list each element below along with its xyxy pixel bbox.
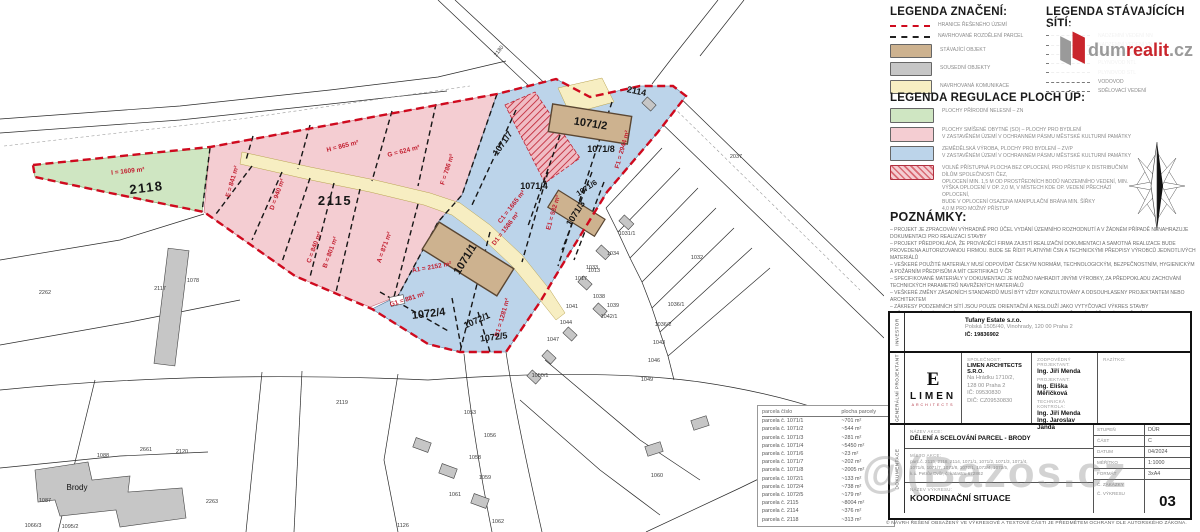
parcel-number-cell: parcela č. 2115 (762, 499, 841, 507)
legend-item: HRANICE ŘEŠENÉHO ÚZEMÍ (890, 22, 1042, 29)
parcel-number-cell: parcela č. 1071/4 (762, 442, 841, 450)
neighbor-parcel-label: 1060 (651, 473, 663, 479)
parcel-number-cell: parcela č. 1072/1 (762, 475, 841, 483)
parcel-area-cell: ~376 m² (841, 507, 890, 515)
notes-title: POZNÁMKY: (890, 210, 1196, 224)
parcel-number-cell: parcela č. 1072/5 (762, 491, 841, 499)
neighbor-parcel-label: 1043 (653, 340, 665, 346)
neighbor-parcel-label: 2661 (140, 447, 152, 453)
neighbor-parcel-label: 2119 (336, 400, 348, 406)
plan-sheet: I = 1609 m²H = 865 m²G = 624 m²F = 786 m… (0, 0, 1200, 532)
neighbor-parcel-label: 1053 (464, 410, 476, 416)
nazev-akce-value: DĚLENÍ A SCELOVÁNÍ PARCEL - BRODY (910, 435, 1088, 442)
meta-value (1145, 480, 1190, 489)
legend-item-label: STÁVAJÍCÍ OBJEKT (940, 47, 986, 54)
parcel-table-header: parcela číslo plocha parcely (762, 408, 890, 417)
neighbor-parcel-label: 1059 (479, 475, 491, 481)
neighbor-parcel-label: 1047 (547, 337, 559, 343)
meta-value: 3xA4 (1145, 469, 1190, 479)
parcel-area-cell: ~701 m² (841, 417, 890, 425)
neighbor-parcel-label: 1042/1 (601, 314, 618, 320)
utility-legend-item: VODOVOD (1046, 79, 1198, 86)
company-name: LIMEN ARCHITECTS S.R.O. (967, 363, 1026, 375)
neighbor-parcel-label: 1061 (449, 492, 461, 498)
table-row: parcela č. 2115~8004 m² (762, 499, 890, 507)
investor-address: Polská 1505/40, Vinohrady, 120 00 Praha … (965, 324, 1185, 332)
regulation-legend-label: PLOCHY PŘÍRODNÍ NELESNÍ – ZN (942, 108, 1023, 115)
tech-label: TECHNICKÁ KONTROLA: (1037, 399, 1092, 409)
neighbor-parcel-label: 1038 (593, 294, 605, 300)
parcel-number-cell: parcela č. 1071/2 (762, 425, 841, 433)
line-sample-icon (890, 36, 930, 38)
regulation-legend-item: VOLNĚ PŘÍSTUPNÁ PLOCHA BEZ OPLOCENÍ, PRO… (890, 165, 1136, 212)
meta-value: DÚR (1145, 425, 1190, 435)
regulation-legend-label: VOLNĚ PŘÍSTUPNÁ PLOCHA BEZ OPLOCENÍ, PRO… (942, 165, 1136, 212)
investor-name: Tufany Estate s.r.o. (965, 317, 1185, 324)
neighbor-parcel-label: 1087 (39, 498, 51, 504)
parcel-number-label: 1071/8 (587, 144, 615, 154)
regulation-legend-item: PLOCHY PŘÍRODNÍ NELESNÍ – ZN (890, 108, 1136, 123)
company-address2: 128 00 Praha 2 (967, 383, 1026, 391)
zodp-name: Ing. Jiří Menda (1037, 368, 1092, 375)
projektant-side-label-cell: GENERÁLNÍ PROJEKTANT (890, 353, 905, 423)
col-parcel-number: parcela číslo (762, 408, 841, 416)
legend-item-label: NAVRHOVANÁ KOMUNIKACE (940, 83, 1009, 90)
note-line: PROJEKT PŘEDPOKLÁDÁ, ŽE PROVÁDĚCÍ FIRMA … (890, 241, 1196, 262)
drawing-number-value: 03 (1145, 489, 1190, 513)
col-parcel-area: plocha parcely (841, 408, 890, 416)
regulation-legend-item: ZEMĚDĚLSKÁ VÝROBA, PLOCHY PRO BYDLENÍ – … (890, 146, 1136, 161)
neighbor-parcel-label: 2180 (493, 45, 505, 58)
parcel-area-cell: ~313 m² (841, 516, 890, 524)
parcel-number-cell: parcela č. 2114 (762, 507, 841, 515)
hatched-swatch-icon (890, 165, 934, 180)
neighbor-parcel-label: 2120 (176, 449, 188, 455)
titleblock-projektant-row: GENERÁLNÍ PROJEKTANT E LIMEN ARCHITECTS … (890, 353, 1190, 425)
legend-item: STÁVAJÍCÍ OBJEKT (890, 44, 1042, 58)
meta-label: STUPEŇ (1094, 425, 1145, 435)
nazev-akce-label: NÁZEV AKCE: (910, 429, 1088, 434)
meta-value: 04/2024 (1145, 447, 1190, 457)
swatch-icon (890, 146, 934, 161)
dash-line-icon (1046, 82, 1090, 83)
table-row: parcela č. 2118~313 m² (762, 516, 890, 524)
table-row: parcela č. 1071/2~544 m² (762, 425, 890, 433)
legend-regulace-title: LEGENDA REGULACE PLOCH ÚP: (890, 92, 1136, 104)
parcel-number-cell: parcela č. 1071/6 (762, 450, 841, 458)
parcel-number-cell: parcela č. 1071/3 (762, 434, 841, 442)
green-area-2118 (33, 148, 210, 212)
swatch-icon (890, 44, 932, 58)
proj-name: Ing. Eliška Měřičková (1037, 383, 1092, 397)
parcel-area-cell: ~544 m² (841, 425, 890, 433)
site-plan-map: I = 1609 m²H = 865 m²G = 624 m²F = 786 m… (0, 0, 884, 532)
utility-legend-label: VODOVOD (1098, 79, 1124, 86)
neighbor-parcel-label: 1034 (607, 251, 619, 257)
line-sample-icon (890, 25, 930, 27)
parcel-area-cell: ~281 m² (841, 434, 890, 442)
parcel-number-label: 1071/4 (520, 181, 548, 191)
company-label: SPOLEČNOST: (967, 357, 1026, 362)
limen-logo-sub: ARCHITECTS (910, 403, 956, 407)
parcel-number-cell: parcela č. 1071/8 (762, 466, 841, 474)
legend-znaceni-title: LEGENDA ZNAČENÍ: (890, 6, 1042, 18)
limen-logo-text: LIMEN (910, 391, 956, 402)
swatch-icon (890, 108, 934, 123)
note-line: ZÁKRESY PODZEMNÍCH SÍTÍ JSOU POUZE ORIEN… (890, 304, 1196, 311)
legend-item: NAVRHOVANÉ ROZDĚLENÍ PARCEL (890, 33, 1042, 40)
dumrealit-text-cz: .cz (1169, 40, 1193, 61)
titleblock-investor-row: INVESTOR Tufany Estate s.r.o. Polská 150… (890, 313, 1190, 353)
note-line: VEŠKERÉ POUŽITÉ MATERIÁLY MUSÍ ODPOVÍDAT… (890, 262, 1196, 276)
bazos-watermark: @(Bazos.cz (862, 448, 1128, 498)
swatch-icon (890, 62, 932, 76)
note-line: PROJEKT JE ZPRACOVÁN VÝHRADNĚ PRO ÚČEL V… (890, 227, 1196, 241)
proj-label: PROJEKTANT: (1037, 377, 1092, 382)
neighbor-parcel-label: 1050/1 (532, 373, 549, 379)
table-row: parcela č. 1071/3~281 m² (762, 434, 890, 442)
dumrealit-text-realit: realit (1126, 40, 1169, 61)
tech-name-1: Ing. Jiří Menda (1037, 410, 1092, 417)
neighbor-parcel-label: 2037 (730, 154, 742, 160)
people-cell: ZODPOVĚDNÝ PROJEKTANT: Ing. Jiří Menda P… (1032, 353, 1098, 423)
investor-side-label: INVESTOR (895, 318, 900, 345)
parcel-number-cell: parcela č. 1071/7 (762, 458, 841, 466)
dumrealit-text-dum: dum (1088, 40, 1126, 61)
nazev-akce-cell: NÁZEV AKCE: DĚLENÍ A SCELOVÁNÍ PARCEL - … (905, 425, 1093, 449)
parcel-number-cell: parcela č. 1071/1 (762, 417, 841, 425)
neighbor-parcel-label: 2117 (154, 286, 166, 292)
neighbor-parcel-label: 1041 (566, 304, 578, 310)
company-dic: DIČ: CZ09530830 (967, 398, 1026, 406)
neighbor-parcel-label: 1095/2 (62, 524, 79, 530)
legend-item-label: SOUSEDNÍ OBJEKTY (940, 65, 990, 72)
neighbor-parcel-label: 1036/1 (668, 302, 685, 308)
legend-znaceni: LEGENDA ZNAČENÍ: HRANICE ŘEŠENÉHO ÚZEMÍN… (890, 6, 1042, 94)
note-line: SPECIFIKOVANÉ MATERIÁLY V DOKUMENTACI JE… (890, 276, 1196, 290)
table-row: parcela č. 1071/1~701 m² (762, 417, 890, 425)
neighbor-parcel-label: 1062 (492, 519, 504, 525)
table-row: parcela č. 2114~376 m² (762, 507, 890, 515)
parcel-number-cell: parcela č. 1072/4 (762, 483, 841, 491)
limen-logo-cell: E LIMEN ARCHITECTS (905, 353, 962, 423)
meta-row: ČÁSTC (1094, 436, 1190, 447)
meta-row: STUPEŇDÚR (1094, 425, 1190, 436)
limen-logo: E LIMEN ARCHITECTS (910, 370, 956, 407)
neighbor-parcel-label: 1013 (588, 268, 600, 274)
parcel-number-label: 2115 (318, 193, 352, 208)
copyright-line: © NÁVRH ŘEŠENÍ OBSAŽENÝ VE VÝKRESOVÉ A T… (886, 521, 1196, 526)
company-ic: IČ: 09530830 (967, 390, 1026, 398)
legend-item: SOUSEDNÍ OBJEKTY (890, 62, 1042, 76)
neighbor-parcel-label: 1046 (648, 358, 660, 364)
meta-label: ČÁST (1094, 436, 1145, 446)
neighbor-parcel-label: 1078 (187, 278, 199, 284)
legend-item-label: NAVRHOVANÉ ROZDĚLENÍ PARCEL (938, 33, 1023, 40)
legend-regulace: LEGENDA REGULACE PLOCH ÚP: PLOCHY PŘÍROD… (890, 92, 1136, 212)
limen-logo-mark: E (910, 370, 956, 389)
regulation-legend-label: PLOCHY SMÍŠENÉ OBYTNÉ (SO) – PLOCHY PRO … (942, 127, 1131, 141)
neighbor-parcel-label: 1036/2 (655, 322, 672, 328)
neighbor-parcel-label: 2263 (206, 499, 218, 505)
stamp-cell: RAZÍTKO: (1098, 353, 1190, 423)
zodp-label: ZODPOVĚDNÝ PROJEKTANT: (1037, 357, 1092, 367)
investor-side-label-cell: INVESTOR (890, 313, 905, 351)
parcel-area-cell: ~8004 m² (841, 499, 890, 507)
regulation-legend-item: PLOCHY SMÍŠENÉ OBYTNÉ (SO) – PLOCHY PRO … (890, 127, 1136, 142)
investor-spacer (905, 313, 960, 351)
meta-value: 1:1000 (1145, 458, 1190, 468)
neighbor-parcel-label: 1066/3 (25, 523, 42, 529)
neighbor-parcel-label: 1056 (484, 433, 496, 439)
neighbor-parcel-label: 1044 (560, 320, 572, 326)
projektant-side-label: GENERÁLNÍ PROJEKTANT (895, 354, 900, 422)
parcel-number-cell: parcela č. 2118 (762, 516, 841, 524)
neighbor-parcel-label: 2262 (39, 290, 51, 296)
meta-value: C (1145, 436, 1190, 446)
neighbor-parcel-label: 1032 (691, 255, 703, 261)
note-line: VEŠKERÉ ZMĚNY ZÁSADNÍCH STANDARDŮ MUSÍ B… (890, 290, 1196, 304)
legend-item-label: HRANICE ŘEŠENÉHO ÚZEMÍ (938, 22, 1007, 29)
neighbor-parcel-label: 1049 (641, 377, 653, 383)
neighbor-parcel-label: 1039 (607, 303, 619, 309)
investor-info: Tufany Estate s.r.o. Polská 1505/40, Vin… (960, 313, 1190, 351)
company-address1: Na Hrádku 1710/2, (967, 375, 1026, 383)
neighbor-parcel-label: 1017 (575, 276, 587, 282)
dumrealit-house-icon (1054, 28, 1088, 72)
neighbor-parcel-label: 1126 (397, 523, 409, 529)
company-cell: SPOLEČNOST: LIMEN ARCHITECTS S.R.O. Na H… (962, 353, 1032, 423)
stamp-label: RAZÍTKO: (1103, 357, 1185, 362)
neighbor-parcel-label: 1088 (97, 453, 109, 459)
swatch-icon (890, 127, 934, 142)
neighbor-parcel-label: Brody (67, 483, 88, 492)
investor-ic: IČ: 19836902 (965, 332, 1185, 338)
dumrealit-watermark: dumrealit.cz (1050, 26, 1197, 74)
neighbor-parcel-label: 1058 (469, 455, 481, 461)
neighbor-parcel-label: 1031/1 (619, 231, 636, 237)
regulation-legend-label: ZEMĚDĚLSKÁ VÝROBA, PLOCHY PRO BYDLENÍ – … (942, 146, 1131, 160)
